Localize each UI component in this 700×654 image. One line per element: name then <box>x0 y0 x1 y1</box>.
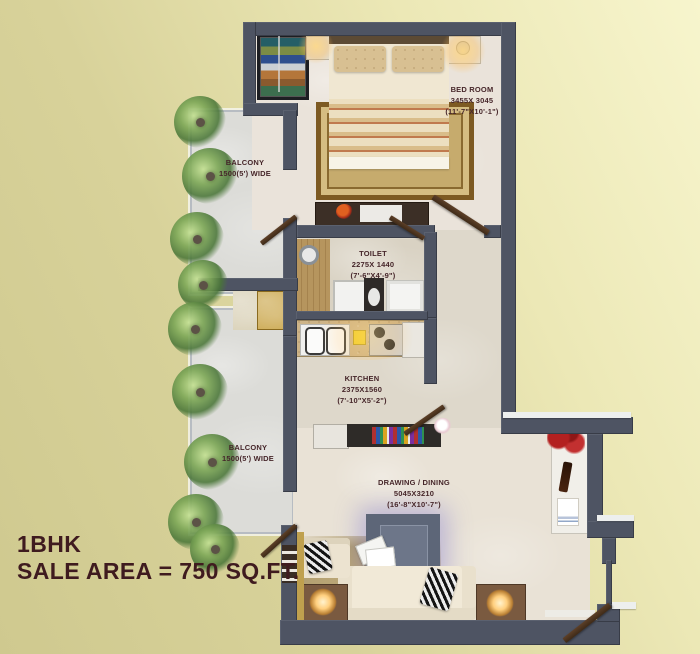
wall-left-upper <box>243 22 256 116</box>
bed-pillow <box>334 46 386 72</box>
drawing-dining-label: DRAWING / DINING 5045X3210 (16'-8"X10'-7… <box>354 477 474 510</box>
balcony-plant <box>170 212 224 266</box>
balcony-bottom-size: 1500(5') WIDE <box>198 453 298 464</box>
washbasin <box>386 280 424 313</box>
bed-pillow <box>392 46 444 72</box>
balcony-top-size: 1500(5') WIDE <box>195 168 295 179</box>
entry-threshold <box>545 610 595 617</box>
floorplan-canvas: BED ROOM 3455X 3045 (11'-7"X10'-1") BALC… <box>0 0 700 654</box>
plan-title: 1BHK SALE AREA = 750 SQ.FT. <box>17 531 300 585</box>
balcony-bottom-name: BALCONY <box>198 442 298 453</box>
table-lamp <box>309 588 337 616</box>
flower-vase-white <box>434 418 452 434</box>
toilet-label: TOILET 2275X 1440 (7'-6"X4'-9") <box>323 248 423 281</box>
wall-step <box>587 521 634 538</box>
balcony-plant <box>174 96 226 148</box>
kitchen-size-ft: (7'-10"X5'-2") <box>312 395 412 406</box>
wall-toilet-right <box>424 232 437 318</box>
wall-toilet-bottom <box>296 311 428 320</box>
wall-mid-c <box>283 336 297 492</box>
duct-shaft-left <box>233 290 257 330</box>
toilet-name: TOILET <box>323 248 423 259</box>
kitchen-name: KITCHEN <box>312 373 412 384</box>
plan-sale-area: SALE AREA = 750 SQ.FT. <box>17 558 300 585</box>
drawing-dining-name: DRAWING / DINING <box>354 477 474 488</box>
wall-right <box>501 22 516 422</box>
wall-wing-right <box>587 434 603 524</box>
book-row <box>372 427 424 444</box>
wall-mid-b <box>283 218 297 336</box>
corner-ledge <box>612 602 636 609</box>
toilet-size-ft: (7'-6"X4'-9") <box>323 270 423 281</box>
balcony-plant <box>168 302 222 356</box>
wing-top-ledge <box>503 412 631 418</box>
table-lamp <box>486 589 514 617</box>
bar-cabinet-white <box>313 424 349 449</box>
balcony-bottom-label: BALCONY 1500(5') WIDE <box>198 442 298 464</box>
toilet-size-mm: 2275X 1440 <box>323 259 423 270</box>
bedroom-label: BED ROOM 3455X 3045 (11'-7"X10'-1") <box>417 84 527 117</box>
bed-foot-band <box>329 157 449 169</box>
kitchen-label: KITCHEN 2375X1560 (7'-10"X5'-2") <box>312 373 412 406</box>
flower-decor <box>336 204 353 219</box>
step-ledge <box>597 515 634 521</box>
drawing-dining-size-mm: 5045X3210 <box>354 488 474 499</box>
wall-kitchen-right <box>424 318 437 384</box>
wardrobe-divider <box>278 36 280 92</box>
bedroom-size-mm: 3455X 3045 <box>417 95 527 106</box>
bedroom-name: BED ROOM <box>417 84 527 95</box>
wall-top <box>243 22 516 36</box>
duct-shaft <box>257 291 285 330</box>
wall-wing-top <box>501 417 633 434</box>
balcony-plant <box>172 364 228 420</box>
bedroom-size-ft: (11'-7"X10'-1") <box>417 106 527 117</box>
balcony-top-name: BALCONY <box>195 157 295 168</box>
drawing-dining-size-ft: (16'-8"X10'-7") <box>354 499 474 510</box>
decor-box <box>557 498 579 526</box>
plan-type: 1BHK <box>17 531 300 558</box>
shower-head <box>299 245 319 265</box>
wc-seat <box>368 288 380 306</box>
kitchen-size-mm: 2375X1560 <box>312 384 412 395</box>
balcony-top-label: BALCONY 1500(5') WIDE <box>195 157 295 179</box>
